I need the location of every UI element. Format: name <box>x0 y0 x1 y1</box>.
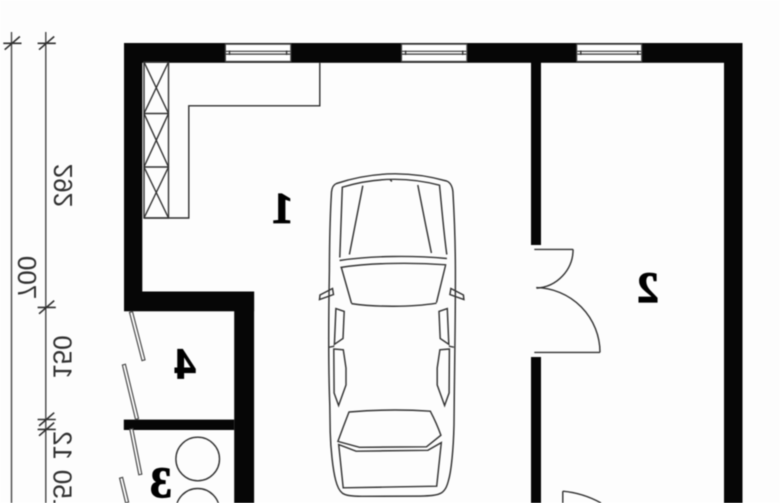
svg-text:700: 700 <box>12 256 42 299</box>
svg-text:3: 3 <box>150 460 172 503</box>
svg-text:1: 1 <box>272 186 294 233</box>
svg-text:150: 150 <box>48 335 78 378</box>
svg-text:2: 2 <box>637 265 659 312</box>
svg-text:12: 12 <box>48 431 78 460</box>
svg-text:292: 292 <box>48 164 78 207</box>
svg-text:4: 4 <box>174 341 196 388</box>
svg-text:150: 150 <box>48 470 78 503</box>
